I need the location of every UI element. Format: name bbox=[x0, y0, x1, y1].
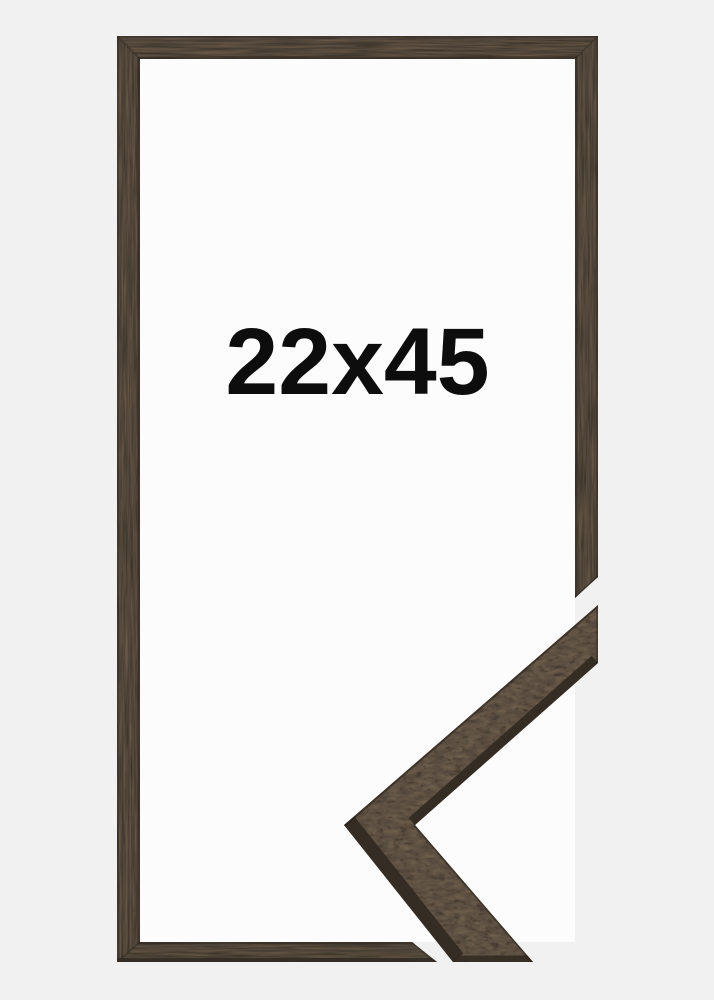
frame-illustration bbox=[0, 0, 714, 1000]
product-photo: 22x45 bbox=[0, 0, 714, 1000]
size-label: 22x45 bbox=[140, 314, 575, 410]
frame-opening bbox=[140, 59, 575, 942]
